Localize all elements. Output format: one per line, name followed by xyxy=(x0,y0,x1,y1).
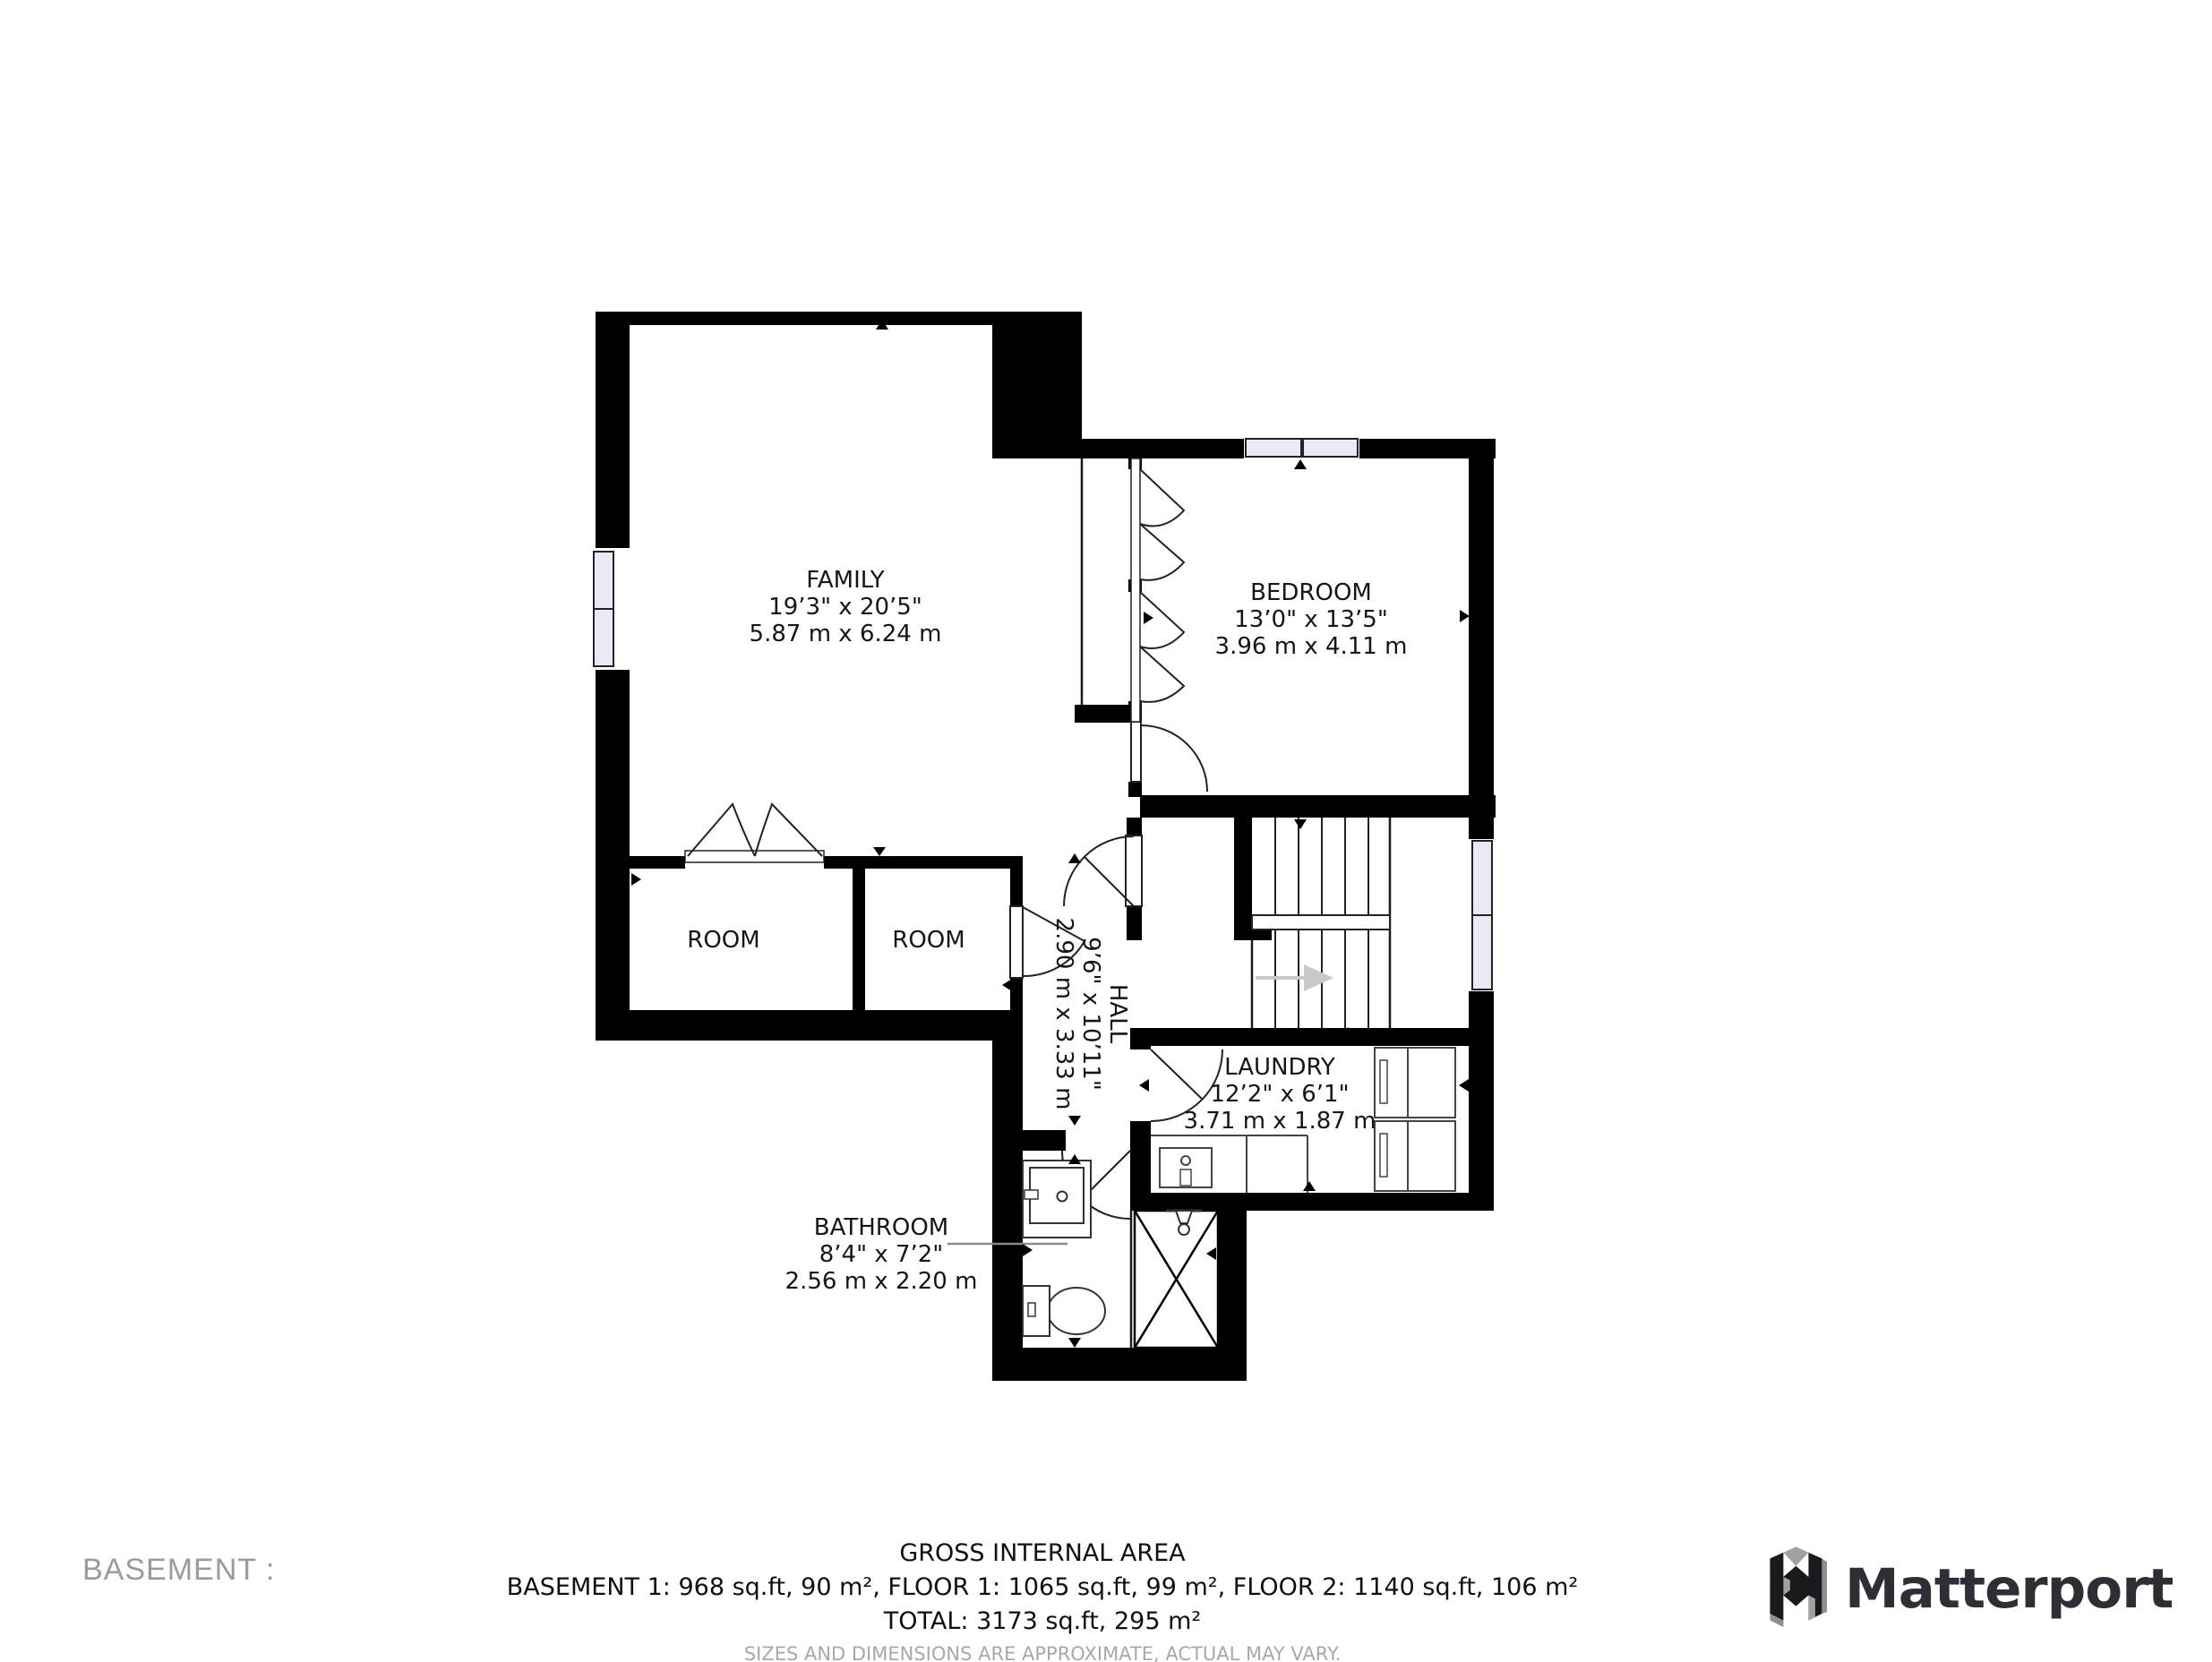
gross-internal-area-block: GROSS INTERNAL AREA BASEMENT 1: 968 sq.f… xyxy=(507,1537,1578,1662)
door-bedroom xyxy=(1131,722,1207,792)
marker-left-icon xyxy=(1459,1079,1469,1092)
room-dims-ft: 13’0" x 13’5" xyxy=(1215,606,1408,633)
staircase xyxy=(1252,818,1390,1028)
marker-up-icon xyxy=(1294,459,1307,469)
room-label-room-left: ROOM xyxy=(687,927,759,954)
room-name: ROOM xyxy=(687,927,759,954)
marker-down-icon xyxy=(873,847,886,856)
window-bedroom-top xyxy=(1244,435,1359,460)
room-label-family: FAMILY 19’3" x 20’5" 5.87 m x 6.24 m xyxy=(750,567,942,647)
marker-left-icon xyxy=(1002,979,1012,991)
area-total: TOTAL: 3173 sq.ft, 295 m² xyxy=(507,1605,1578,1639)
room-name: ROOM xyxy=(892,927,965,954)
room-label-hall: HALL 9’6" x 10’11" 2.90 m x 3.33 m xyxy=(1050,918,1131,1110)
room-dims-m: 3.96 m x 4.11 m xyxy=(1215,633,1408,660)
bifold-doors-family xyxy=(685,804,824,862)
floor-name-label: BASEMENT : xyxy=(82,1553,275,1588)
room-label-laundry: LAUNDRY 12’2" x 6’1" 3.71 m x 1.87 m xyxy=(1184,1054,1376,1135)
floorplan-page: FAMILY 19’3" x 20’5" 5.87 m x 6.24 m BED… xyxy=(0,0,2212,1662)
marker-right-icon xyxy=(631,873,641,886)
room-dims-m: 2.90 m x 3.33 m xyxy=(1050,918,1077,1110)
matterport-logo: Matterport xyxy=(1750,1546,2173,1632)
shower-icon xyxy=(1135,1211,1218,1348)
windows xyxy=(592,435,1496,991)
marker-right-icon xyxy=(1023,1244,1033,1256)
room-label-bathroom: BATHROOM 8’4" x 7’2" 2.56 m x 2.20 m xyxy=(785,1214,978,1295)
floorplan-drawing xyxy=(0,0,2212,1662)
bathroom-fixtures xyxy=(1023,1161,1218,1348)
marker-up-icon xyxy=(1068,853,1081,863)
sink-vanity-icon xyxy=(1023,1161,1091,1238)
room-dims-m: 3.71 m x 1.87 m xyxy=(1184,1108,1376,1135)
area-breakdown: BASEMENT 1: 968 sq.ft, 90 m², FLOOR 1: 1… xyxy=(507,1571,1578,1605)
room-dims-m: 2.56 m x 2.20 m xyxy=(785,1268,978,1295)
area-title: GROSS INTERNAL AREA xyxy=(507,1537,1578,1571)
room-label-room-right: ROOM xyxy=(892,927,965,954)
marker-right-icon xyxy=(1460,610,1470,622)
room-name: HALL xyxy=(1104,918,1131,1110)
marker-left-icon xyxy=(1139,1079,1149,1092)
washer-icon xyxy=(1375,1048,1455,1118)
marker-right-icon xyxy=(1144,612,1153,624)
disclaimer-text: SIZES AND DIMENSIONS ARE APPROXIMATE, AC… xyxy=(507,1639,1578,1662)
room-dims-ft: 8’4" x 7’2" xyxy=(785,1241,978,1268)
window-family-left xyxy=(592,548,631,670)
room-name: BATHROOM xyxy=(785,1214,978,1241)
marker-up-icon xyxy=(1068,1154,1081,1164)
marker-up-icon xyxy=(1303,1181,1316,1191)
room-dims-ft: 19’3" x 20’5" xyxy=(750,594,942,621)
marker-down-icon xyxy=(1068,1116,1081,1126)
marker-down-icon xyxy=(1068,1338,1081,1348)
dryer-icon xyxy=(1375,1121,1455,1191)
door-stairs xyxy=(1064,835,1142,906)
room-dims-ft: 12’2" x 6’1" xyxy=(1184,1081,1376,1108)
room-dims-m: 5.87 m x 6.24 m xyxy=(750,621,942,647)
room-dims-ft: 9’6" x 10’11" xyxy=(1077,918,1104,1110)
matterport-wordmark: Matterport xyxy=(1845,1557,2173,1621)
room-name: LAUNDRY xyxy=(1184,1054,1376,1081)
room-name: FAMILY xyxy=(750,567,942,594)
window-stairs-right xyxy=(1469,839,1496,991)
toilet-icon xyxy=(1023,1286,1105,1336)
room-name: BEDROOM xyxy=(1215,579,1408,606)
room-label-bedroom: BEDROOM 13’0" x 13’5" 3.96 m x 4.11 m xyxy=(1215,579,1408,660)
bifold-doors-bedroom-closet xyxy=(1131,458,1184,722)
laundry-sink-icon xyxy=(1160,1148,1212,1187)
matterport-logo-icon xyxy=(1750,1546,1827,1632)
marker-down-icon xyxy=(1294,819,1307,829)
